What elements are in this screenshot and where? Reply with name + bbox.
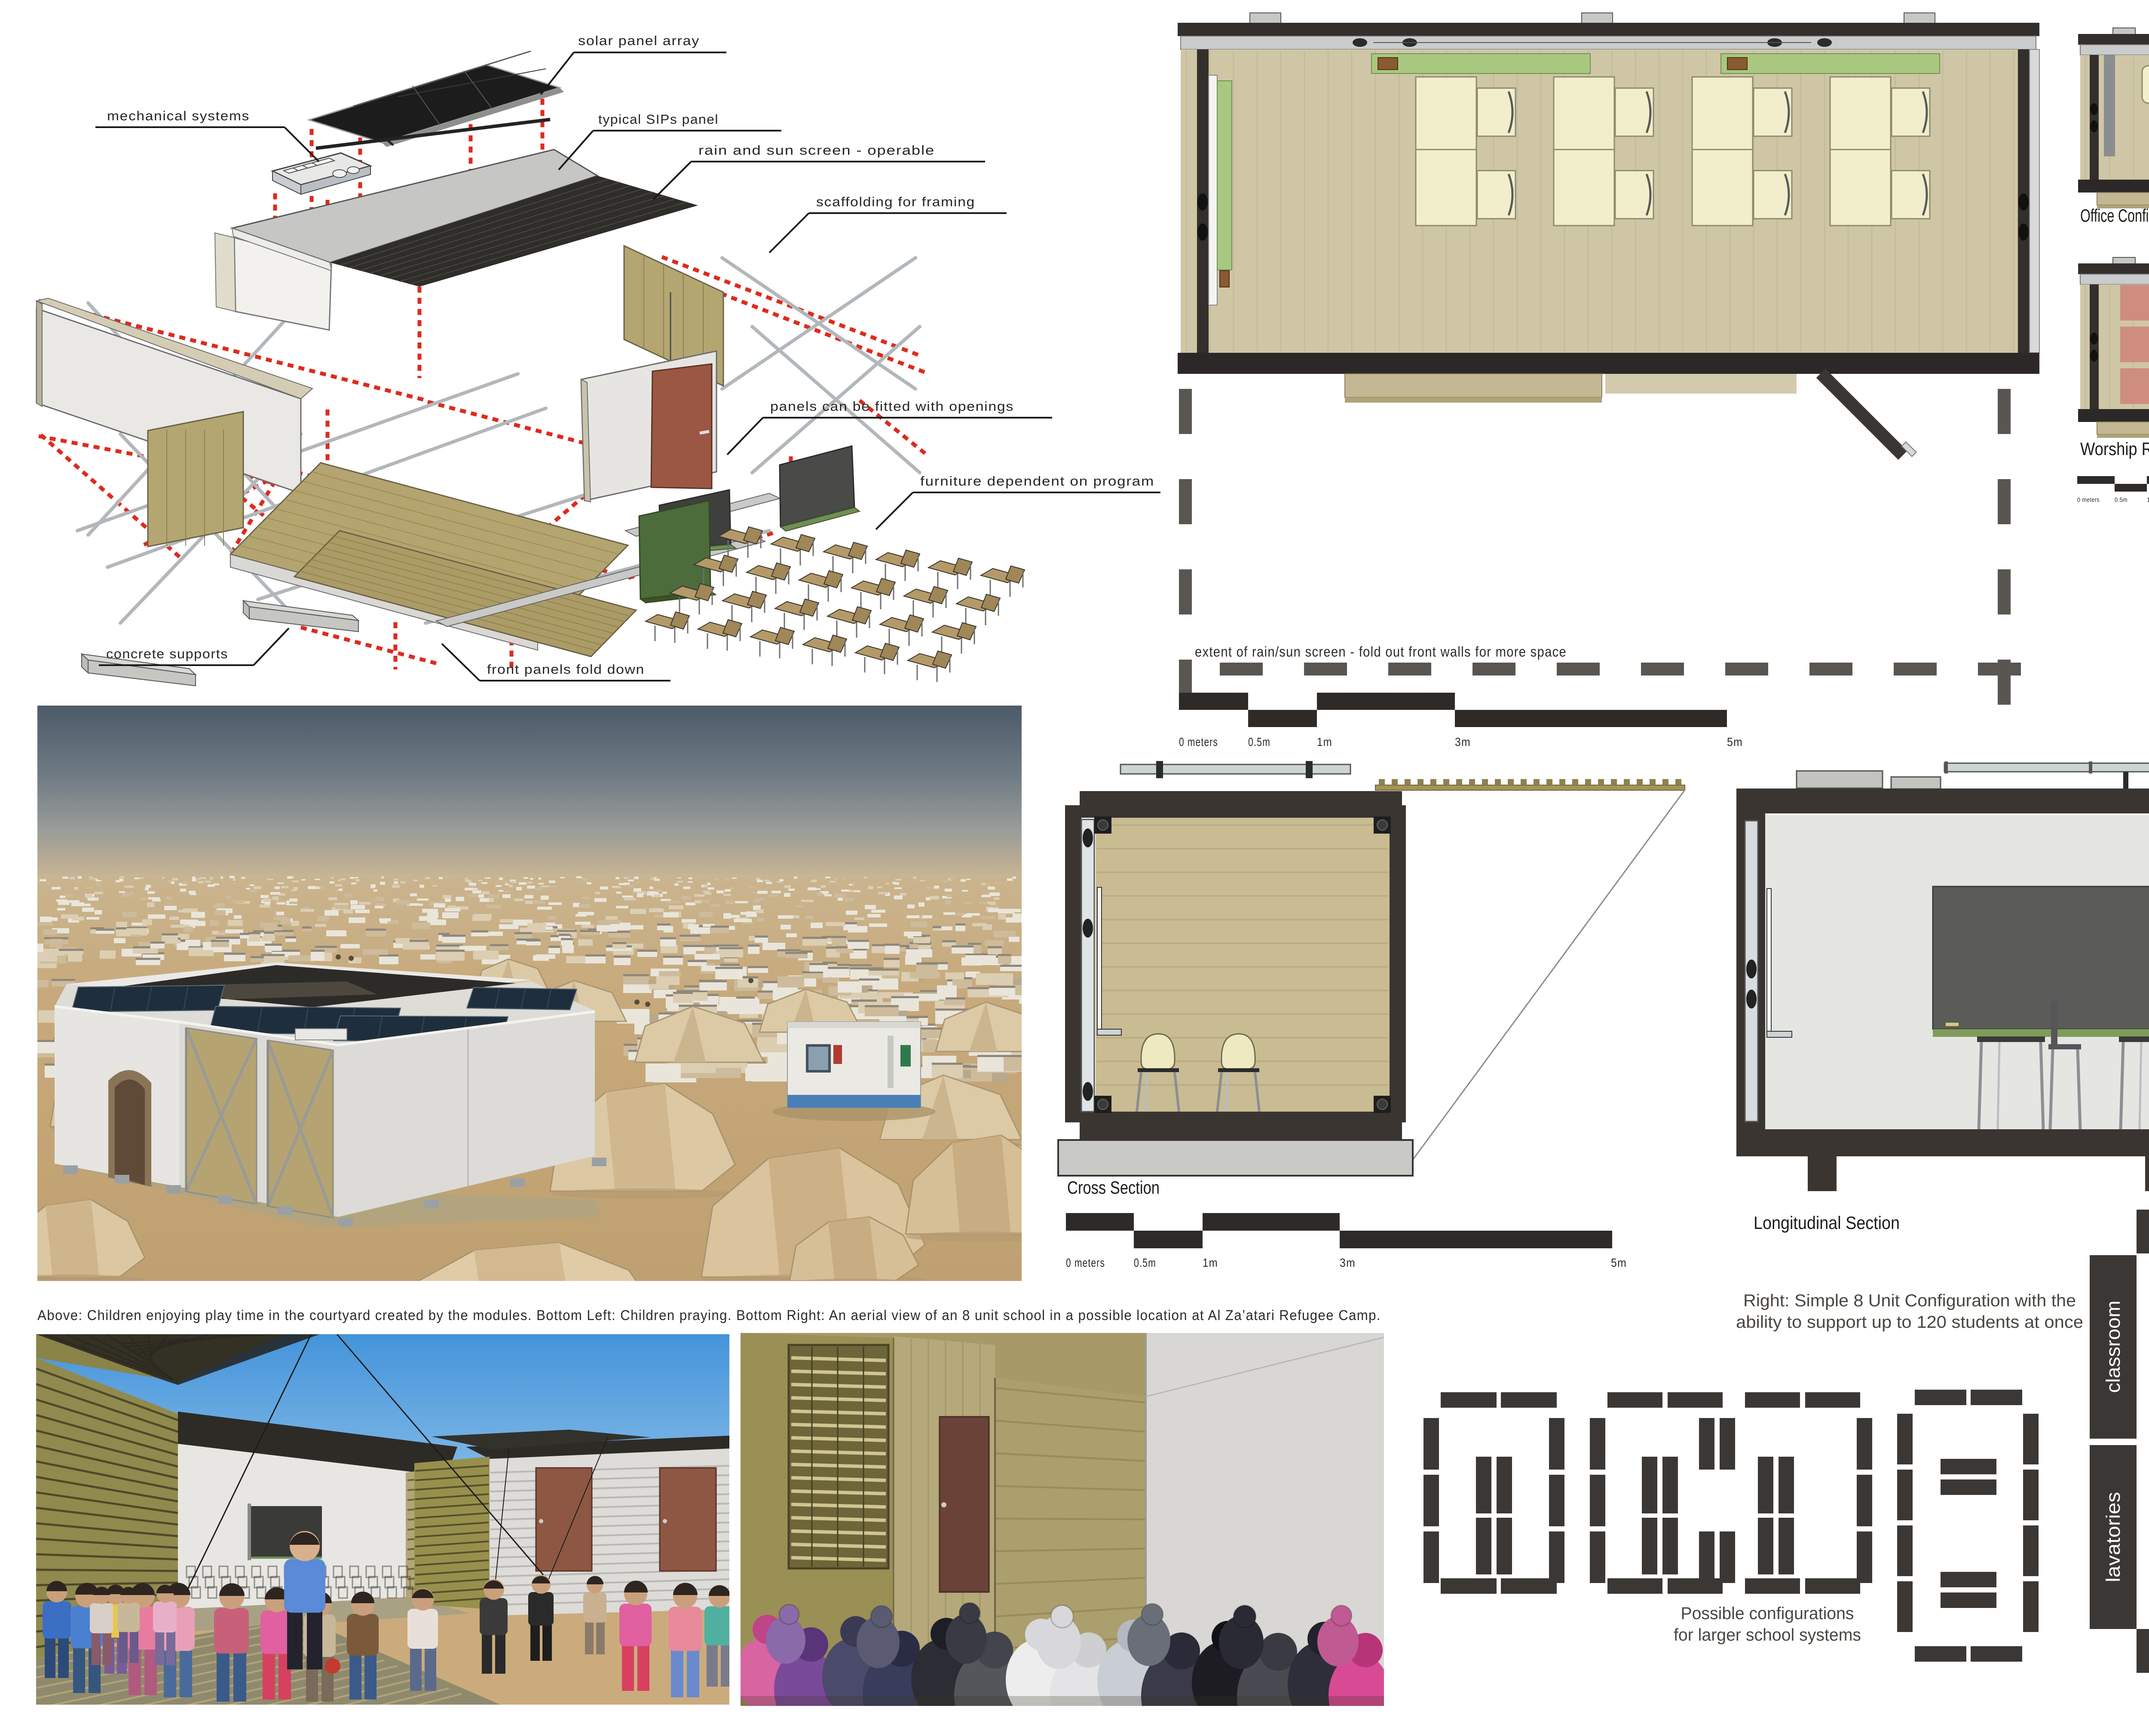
svg-text:front panels fold down: front panels fold down <box>487 662 645 677</box>
svg-text:lavatories: lavatories <box>2102 1492 2124 1582</box>
svg-text:scaffolding for framing: scaffolding for framing <box>816 194 975 209</box>
svg-text:typical SIPs panel: typical SIPs panel <box>598 112 719 127</box>
svg-text:0.5m: 0.5m <box>2115 496 2128 504</box>
svg-text:0.5m: 0.5m <box>1248 735 1270 749</box>
svg-text:Possible configurations: Possible configurations <box>1681 1604 1854 1623</box>
svg-text:0.5m: 0.5m <box>1134 1256 1156 1269</box>
svg-text:Above: Children enjoying play: Above: Children enjoying play time in th… <box>37 1307 1381 1323</box>
svg-text:0 meters: 0 meters <box>2077 496 2100 504</box>
svg-text:panels can be fitted with open: panels can be fitted with openings <box>770 399 1014 414</box>
svg-text:0 meters: 0 meters <box>1179 735 1218 749</box>
svg-text:Cross Section: Cross Section <box>1067 1177 1160 1198</box>
svg-text:Worship Room Configuration: Worship Room Configuration <box>2080 439 2149 459</box>
svg-text:1m: 1m <box>1317 735 1332 749</box>
svg-text:Office Configuration: Office Configuration <box>2080 205 2149 226</box>
svg-text:0 meters: 0 meters <box>1066 1256 1105 1269</box>
svg-text:mechanical systems: mechanical systems <box>107 108 250 123</box>
svg-text:rain and sun screen - operable: rain and sun screen - operable <box>698 143 935 158</box>
svg-text:for larger school systems: for larger school systems <box>1674 1626 1861 1644</box>
svg-text:furniture dependent on program: furniture dependent on program <box>920 474 1154 489</box>
svg-text:solar panel array: solar panel array <box>578 33 700 48</box>
svg-text:3m: 3m <box>1455 735 1471 749</box>
svg-text:3m: 3m <box>1340 1256 1356 1269</box>
svg-text:extent of rain/sun screen - fo: extent of rain/sun screen - fold out fro… <box>1195 644 1567 660</box>
svg-text:5m: 5m <box>1727 735 1743 749</box>
svg-text:1m: 1m <box>1203 1256 1218 1269</box>
svg-text:ability to support up to 120 s: ability to support up to 120 students at… <box>1736 1313 2083 1332</box>
svg-text:concrete supports: concrete supports <box>106 646 228 661</box>
svg-text:1m: 1m <box>2147 496 2149 504</box>
svg-text:classroom: classroom <box>2102 1301 2124 1393</box>
svg-text:Right: Simple 8 Unit Configura: Right: Simple 8 Unit Configuration with … <box>1743 1291 2076 1310</box>
